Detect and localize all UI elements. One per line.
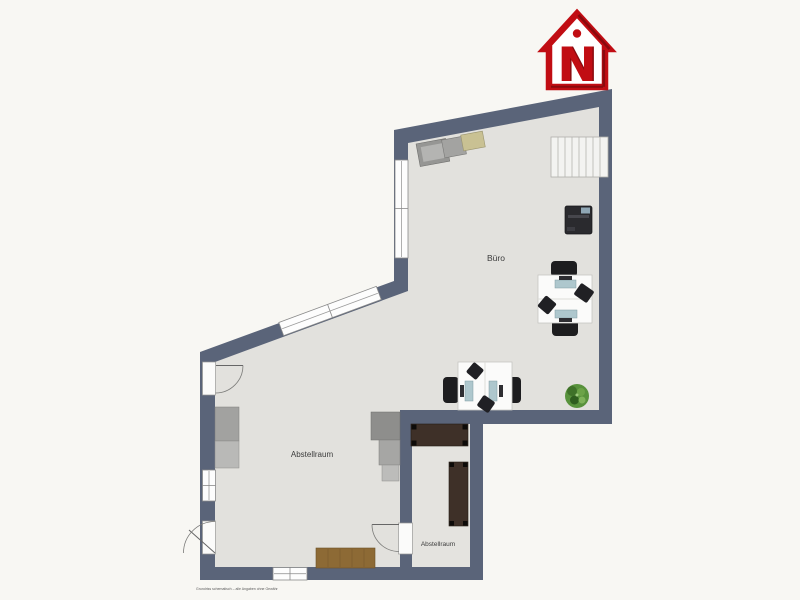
room-label-buero: Büro xyxy=(487,253,505,263)
window-abstellraum-bottom xyxy=(273,568,307,581)
room-label-abstellraum-small: Abstellraum xyxy=(421,541,455,548)
floor-plan-page: Büro Abstellraum Abstellraum N N Grundri… xyxy=(0,0,800,600)
floor-plan: Büro Abstellraum Abstellraum N N Grundri… xyxy=(0,0,800,600)
disclaimer-text: Grundriss schematisch – alle Angaben ohn… xyxy=(196,587,279,591)
north-arrow-house-logo: N N xyxy=(545,14,610,94)
staircase xyxy=(551,137,608,177)
room-label-abstellraum-large: Abstellraum xyxy=(291,450,334,459)
dark-storage-table-horizontal xyxy=(411,424,468,446)
wood-sideboard xyxy=(316,548,375,568)
printer xyxy=(565,206,592,234)
potted-plant xyxy=(565,384,589,408)
door-left-lower-exterior xyxy=(184,521,216,554)
logo-dot xyxy=(573,29,581,37)
window-abstellraum-left xyxy=(203,470,216,501)
wall-cabinet-left xyxy=(215,407,239,468)
dark-storage-table-vertical xyxy=(449,462,468,526)
logo-letter: N xyxy=(557,38,596,93)
window-buero-left xyxy=(395,160,408,258)
